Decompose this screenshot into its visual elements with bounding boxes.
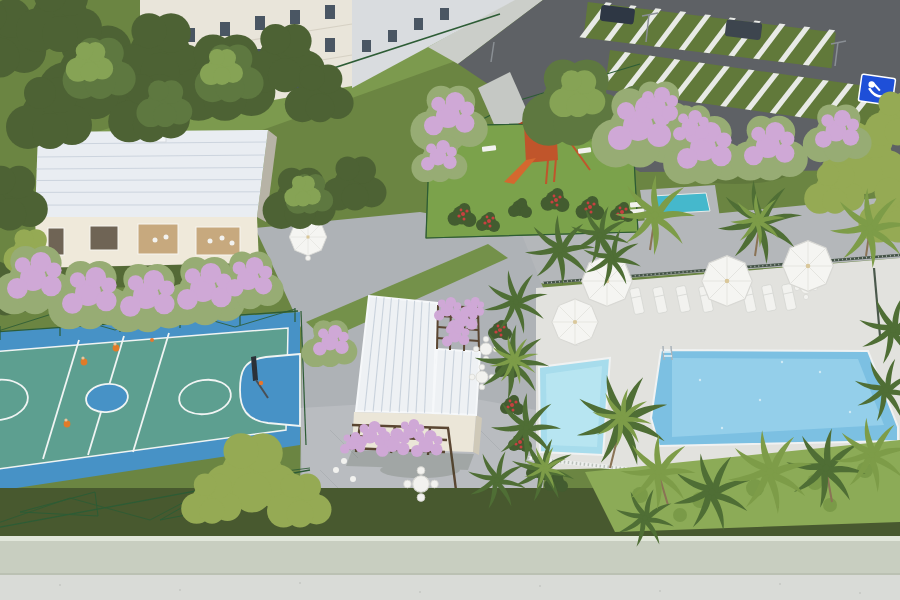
- main-pool-shallow: [672, 358, 884, 437]
- hoop-rim: [259, 381, 263, 385]
- perimeter-wall: [0, 536, 900, 576]
- key-area: [240, 354, 300, 426]
- condo-aerial-render: [0, 0, 900, 600]
- pavilion-roof-right: [433, 349, 480, 415]
- wall-top-edge: [0, 536, 900, 541]
- scene-canvas: [0, 0, 900, 600]
- outer-sidewalk: [0, 575, 900, 600]
- ball: [150, 338, 154, 342]
